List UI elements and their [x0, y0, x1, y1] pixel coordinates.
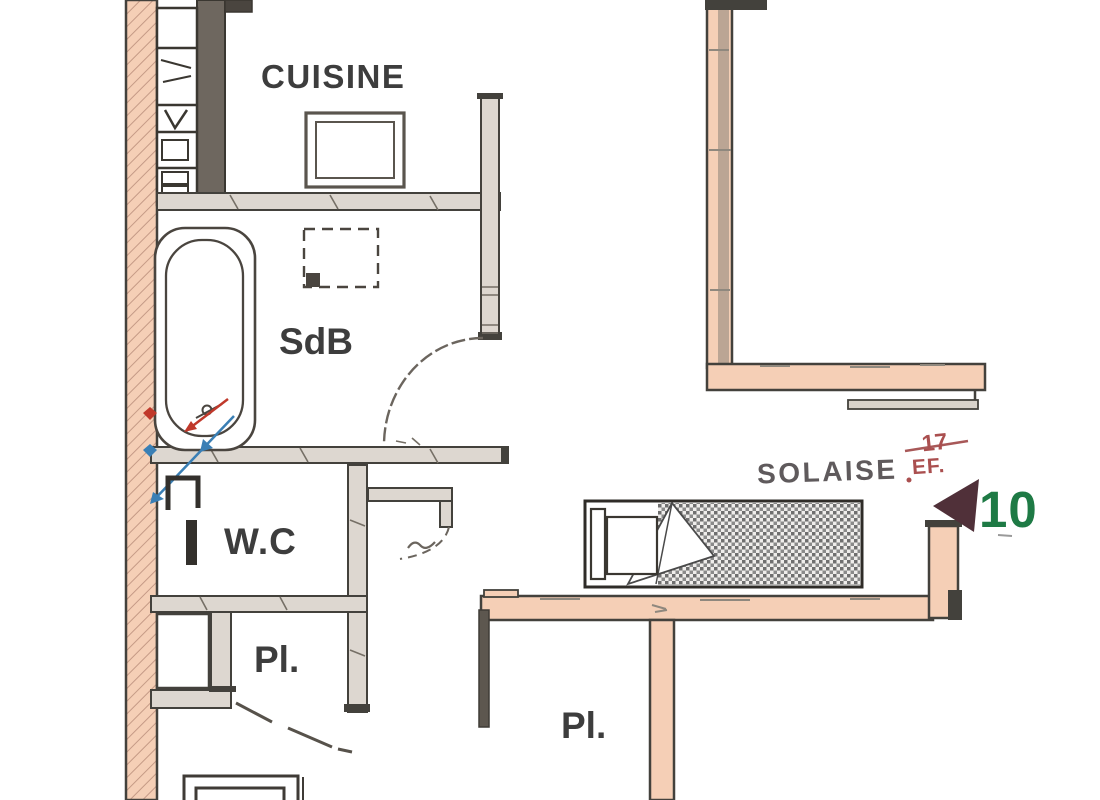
room-label-sdb: SdB: [279, 321, 353, 362]
ref-number-label: 17: [920, 428, 948, 457]
room-label-cuisine: CUISINE: [261, 58, 405, 95]
floor-plan: CUISINE SdB W.C Pl. Pl. SOLAISE 17 EF. 1…: [0, 0, 1100, 800]
bed-pillow: [607, 517, 657, 574]
kitchen-table: [306, 113, 404, 187]
kitchen-counter: [157, 0, 252, 205]
room-label-wc: W.C: [224, 521, 297, 562]
washbasin: [304, 229, 378, 287]
closet-left: [157, 614, 352, 752]
wc-door: [400, 527, 449, 559]
loggia-walls: [705, 0, 985, 400]
exterior-wall-left: [126, 0, 157, 800]
sdb-door-arc: [384, 338, 483, 445]
water-supply-label: EF.: [911, 454, 946, 479]
sofa-bottom-left: [184, 776, 303, 800]
room-label-pl-left: Pl.: [254, 639, 299, 680]
bed: [585, 501, 862, 587]
room-label-pl-right: Pl.: [561, 705, 606, 746]
street-name-label: SOLAISE: [757, 454, 898, 490]
unit-number-label: 10: [979, 481, 1038, 538]
wc-fixture: [168, 478, 198, 565]
floor-plan-drawing: CUISINE SdB W.C Pl. Pl. SOLAISE 17 EF. 1…: [0, 0, 1100, 800]
bed-headboard: [591, 509, 605, 579]
